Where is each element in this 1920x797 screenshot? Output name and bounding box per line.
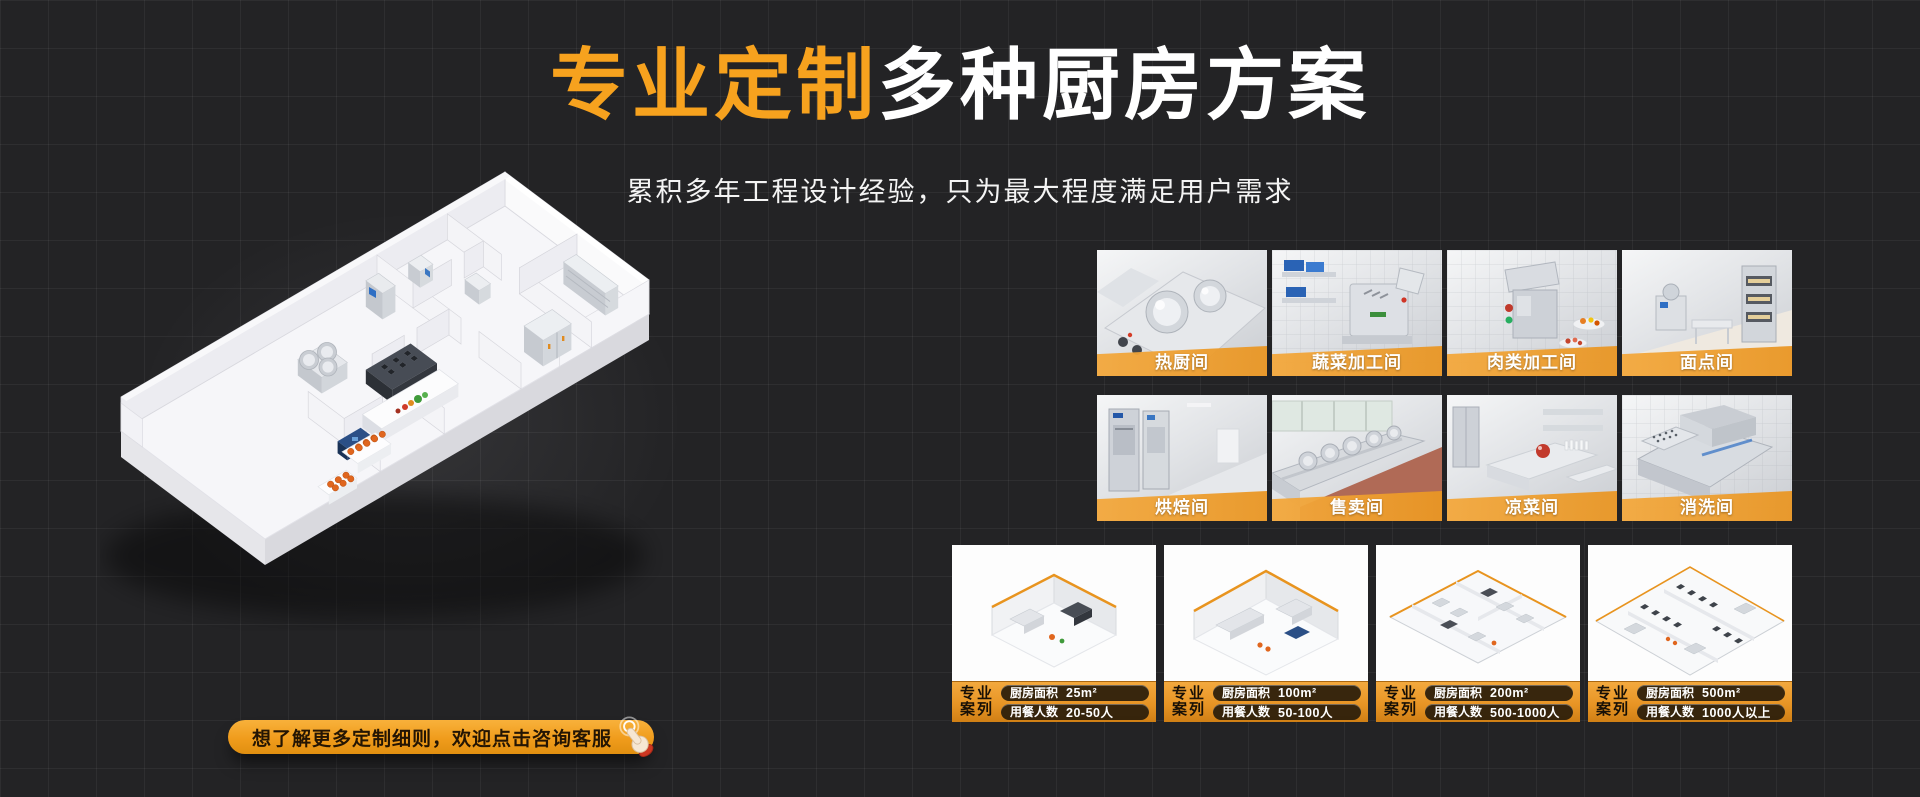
page-title-highlight: 专业定制	[550, 41, 878, 129]
room-tile-serving[interactable]: 售卖间	[1272, 395, 1442, 521]
case-badge: 专业 案列	[1172, 686, 1206, 719]
case-illustration	[1164, 545, 1368, 681]
room-tile-vegetable-processing[interactable]: 蔬菜加工间	[1272, 250, 1442, 376]
room-label: 烘焙间	[1155, 493, 1209, 521]
case-illustration	[952, 545, 1156, 681]
case-illustration	[1588, 545, 1792, 681]
room-label: 面点间	[1680, 348, 1734, 376]
room-tile-baking[interactable]: 烘焙间	[1097, 395, 1267, 521]
room-tile-pastry[interactable]: 面点间	[1622, 250, 1792, 376]
case-badge: 专业 案列	[1596, 686, 1630, 719]
case-area-pill: 厨房面积 100m²	[1213, 685, 1361, 701]
case-capacity-pill: 用餐人数 500-1000人	[1425, 704, 1573, 720]
kitchen-floorplan-illustration	[100, 156, 670, 666]
page-title-rest: 多种厨房方案	[878, 41, 1370, 129]
case-card-500[interactable]: 专业 案列 厨房面积 500m² 用餐人数 1000人以上	[1588, 545, 1792, 722]
room-label: 售卖间	[1330, 493, 1384, 521]
case-area-pill: 厨房面积 200m²	[1425, 685, 1573, 701]
room-tile-meat-processing[interactable]: 肉类加工间	[1447, 250, 1617, 376]
case-footer: 专业 案列 厨房面积 100m² 用餐人数 50-100人	[1164, 681, 1368, 722]
page-title: 专业定制多种厨房方案	[0, 42, 1920, 129]
room-gallery: 热厨间 蔬菜加工间	[1097, 250, 1793, 521]
case-card-25[interactable]: 专业 案列 厨房面积 25m² 用餐人数 20-50人	[952, 545, 1156, 722]
room-label: 热厨间	[1155, 348, 1209, 376]
room-tile-hot-kitchen[interactable]: 热厨间	[1097, 250, 1267, 376]
consult-cta-button[interactable]: 想了解更多定制细则，欢迎点击咨询客服	[228, 720, 654, 754]
room-label: 肉类加工间	[1487, 348, 1577, 376]
case-card-200[interactable]: 专业 案列 厨房面积 200m² 用餐人数 500-1000人	[1376, 545, 1580, 722]
case-area-pill: 厨房面积 500m²	[1637, 685, 1785, 701]
room-tile-dishwashing[interactable]: 消洗间	[1622, 395, 1792, 521]
case-gallery: 专业 案列 厨房面积 25m² 用餐人数 20-50人	[952, 545, 1792, 722]
case-footer: 专业 案列 厨房面积 200m² 用餐人数 500-1000人	[1376, 681, 1580, 722]
room-label: 消洗间	[1680, 493, 1734, 521]
case-capacity-pill: 用餐人数 1000人以上	[1637, 704, 1785, 720]
room-label: 凉菜间	[1505, 493, 1559, 521]
case-badge: 专业 案列	[1384, 686, 1418, 719]
room-tile-cold-dish[interactable]: 凉菜间	[1447, 395, 1617, 521]
case-footer: 专业 案列 厨房面积 500m² 用餐人数 1000人以上	[1588, 681, 1792, 722]
case-footer: 专业 案列 厨房面积 25m² 用餐人数 20-50人	[952, 681, 1156, 722]
case-capacity-pill: 用餐人数 50-100人	[1213, 704, 1361, 720]
click-hand-icon	[614, 714, 660, 760]
case-area-pill: 厨房面积 25m²	[1001, 685, 1149, 701]
case-illustration	[1376, 545, 1580, 681]
case-capacity-pill: 用餐人数 20-50人	[1001, 704, 1149, 720]
consult-cta-label: 想了解更多定制细则，欢迎点击咨询客服	[252, 724, 612, 751]
room-label: 蔬菜加工间	[1312, 348, 1402, 376]
case-badge: 专业 案列	[960, 686, 994, 719]
case-card-100[interactable]: 专业 案列 厨房面积 100m² 用餐人数 50-100人	[1164, 545, 1368, 722]
